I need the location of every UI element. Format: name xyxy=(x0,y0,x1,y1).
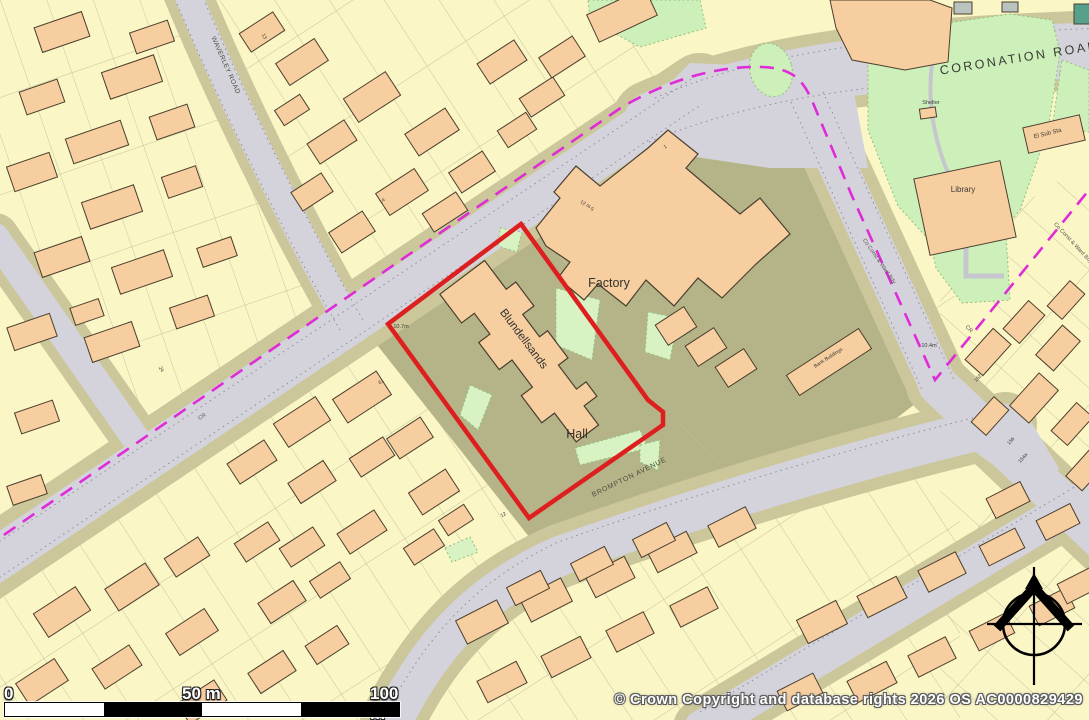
label-factory: Factory xyxy=(588,276,630,290)
building xyxy=(1002,2,1018,12)
label-spot-height: 10.7m xyxy=(393,324,409,330)
scale-bar-segments xyxy=(4,702,400,717)
map-viewport: CORONATION ROADWAVERLEY ROADBROMPTON AVE… xyxy=(0,0,1089,720)
building xyxy=(1074,4,1089,24)
scale-segment xyxy=(202,703,301,716)
scale-segment xyxy=(104,703,203,716)
label-spot-height: 10.4m xyxy=(921,343,937,349)
scale-segment xyxy=(5,703,104,716)
building xyxy=(954,2,972,14)
map-layers: CORONATION ROADWAVERLEY ROADBROMPTON AVE… xyxy=(0,0,1089,720)
scale-segment xyxy=(301,703,400,716)
scale-label-zero: 0 xyxy=(4,684,13,704)
scale-bar: 0 50 m 100 m xyxy=(4,688,404,718)
label-shelter: Shelter xyxy=(922,100,940,106)
compass-north-icon xyxy=(983,565,1087,695)
label-hall: Hall xyxy=(566,427,588,441)
scale-label-50m: 50 m xyxy=(182,684,221,704)
shelter-building xyxy=(919,107,936,119)
os-map[interactable]: CORONATION ROADWAVERLEY ROADBROMPTON AVE… xyxy=(0,0,1089,720)
label-library: Library xyxy=(951,185,975,194)
